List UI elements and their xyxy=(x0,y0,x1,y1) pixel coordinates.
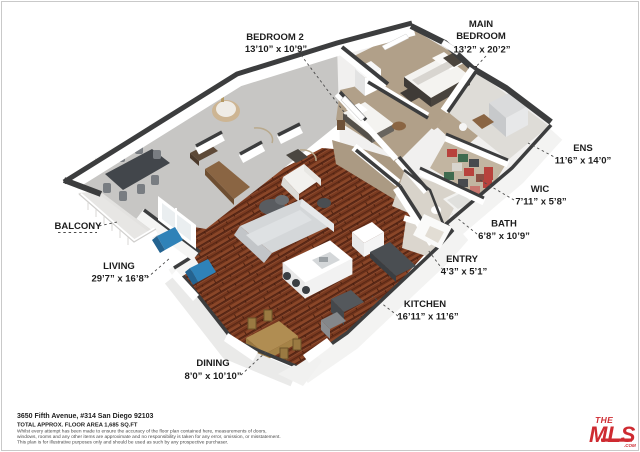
svg-text:6’8” x 10’9”: 6’8” x 10’9” xyxy=(478,231,530,242)
svg-text:Whilst every attempt has been: Whilst every attempt has been made to en… xyxy=(17,429,267,435)
svg-text:windows, rooms and any other i: windows, rooms and any other items are a… xyxy=(17,434,281,440)
svg-text:WIC: WIC xyxy=(531,184,550,195)
svg-text:13’10” x 10’9”: 13’10” x 10’9” xyxy=(245,44,308,55)
svg-text:ENTRY: ENTRY xyxy=(446,254,479,265)
svg-text:KITCHEN: KITCHEN xyxy=(404,299,446,310)
svg-text:BEDROOM 2: BEDROOM 2 xyxy=(246,32,304,43)
svg-text:DINING: DINING xyxy=(196,358,229,369)
svg-text:ENS: ENS xyxy=(573,143,593,154)
svg-text:TOTAL APPROX. FLOOR AREA 1,685: TOTAL APPROX. FLOOR AREA 1,685 SQ.FT xyxy=(17,423,138,429)
svg-text:13’2” x 20’2”: 13’2” x 20’2” xyxy=(453,45,510,56)
svg-text:MAIN: MAIN xyxy=(469,19,493,30)
svg-text:29’7” x 16’8”: 29’7” x 16’8” xyxy=(91,274,148,285)
svg-text:LIVING: LIVING xyxy=(103,261,135,272)
svg-text:.COM: .COM xyxy=(624,443,636,448)
svg-text:BEDROOM: BEDROOM xyxy=(456,31,506,42)
svg-text:This plan is for illustrative: This plan is for illustrative purposes o… xyxy=(17,440,228,446)
svg-text:BATH: BATH xyxy=(491,219,517,230)
svg-text:BALCONY: BALCONY xyxy=(55,221,103,232)
svg-text:3650 Fifth Avenue, #314 San Di: 3650 Fifth Avenue, #314 San Diego 92103 xyxy=(17,413,154,420)
svg-text:4’3” x 5’1”: 4’3” x 5’1” xyxy=(441,267,488,278)
svg-text:7’11” x 5’8”: 7’11” x 5’8” xyxy=(515,197,566,208)
svg-text:8’0” x 10’10”: 8’0” x 10’10” xyxy=(184,371,241,382)
svg-text:11’6” x 14’0”: 11’6” x 14’0” xyxy=(555,156,612,167)
svg-text:16’11” x 11’6”: 16’11” x 11’6” xyxy=(397,312,459,323)
